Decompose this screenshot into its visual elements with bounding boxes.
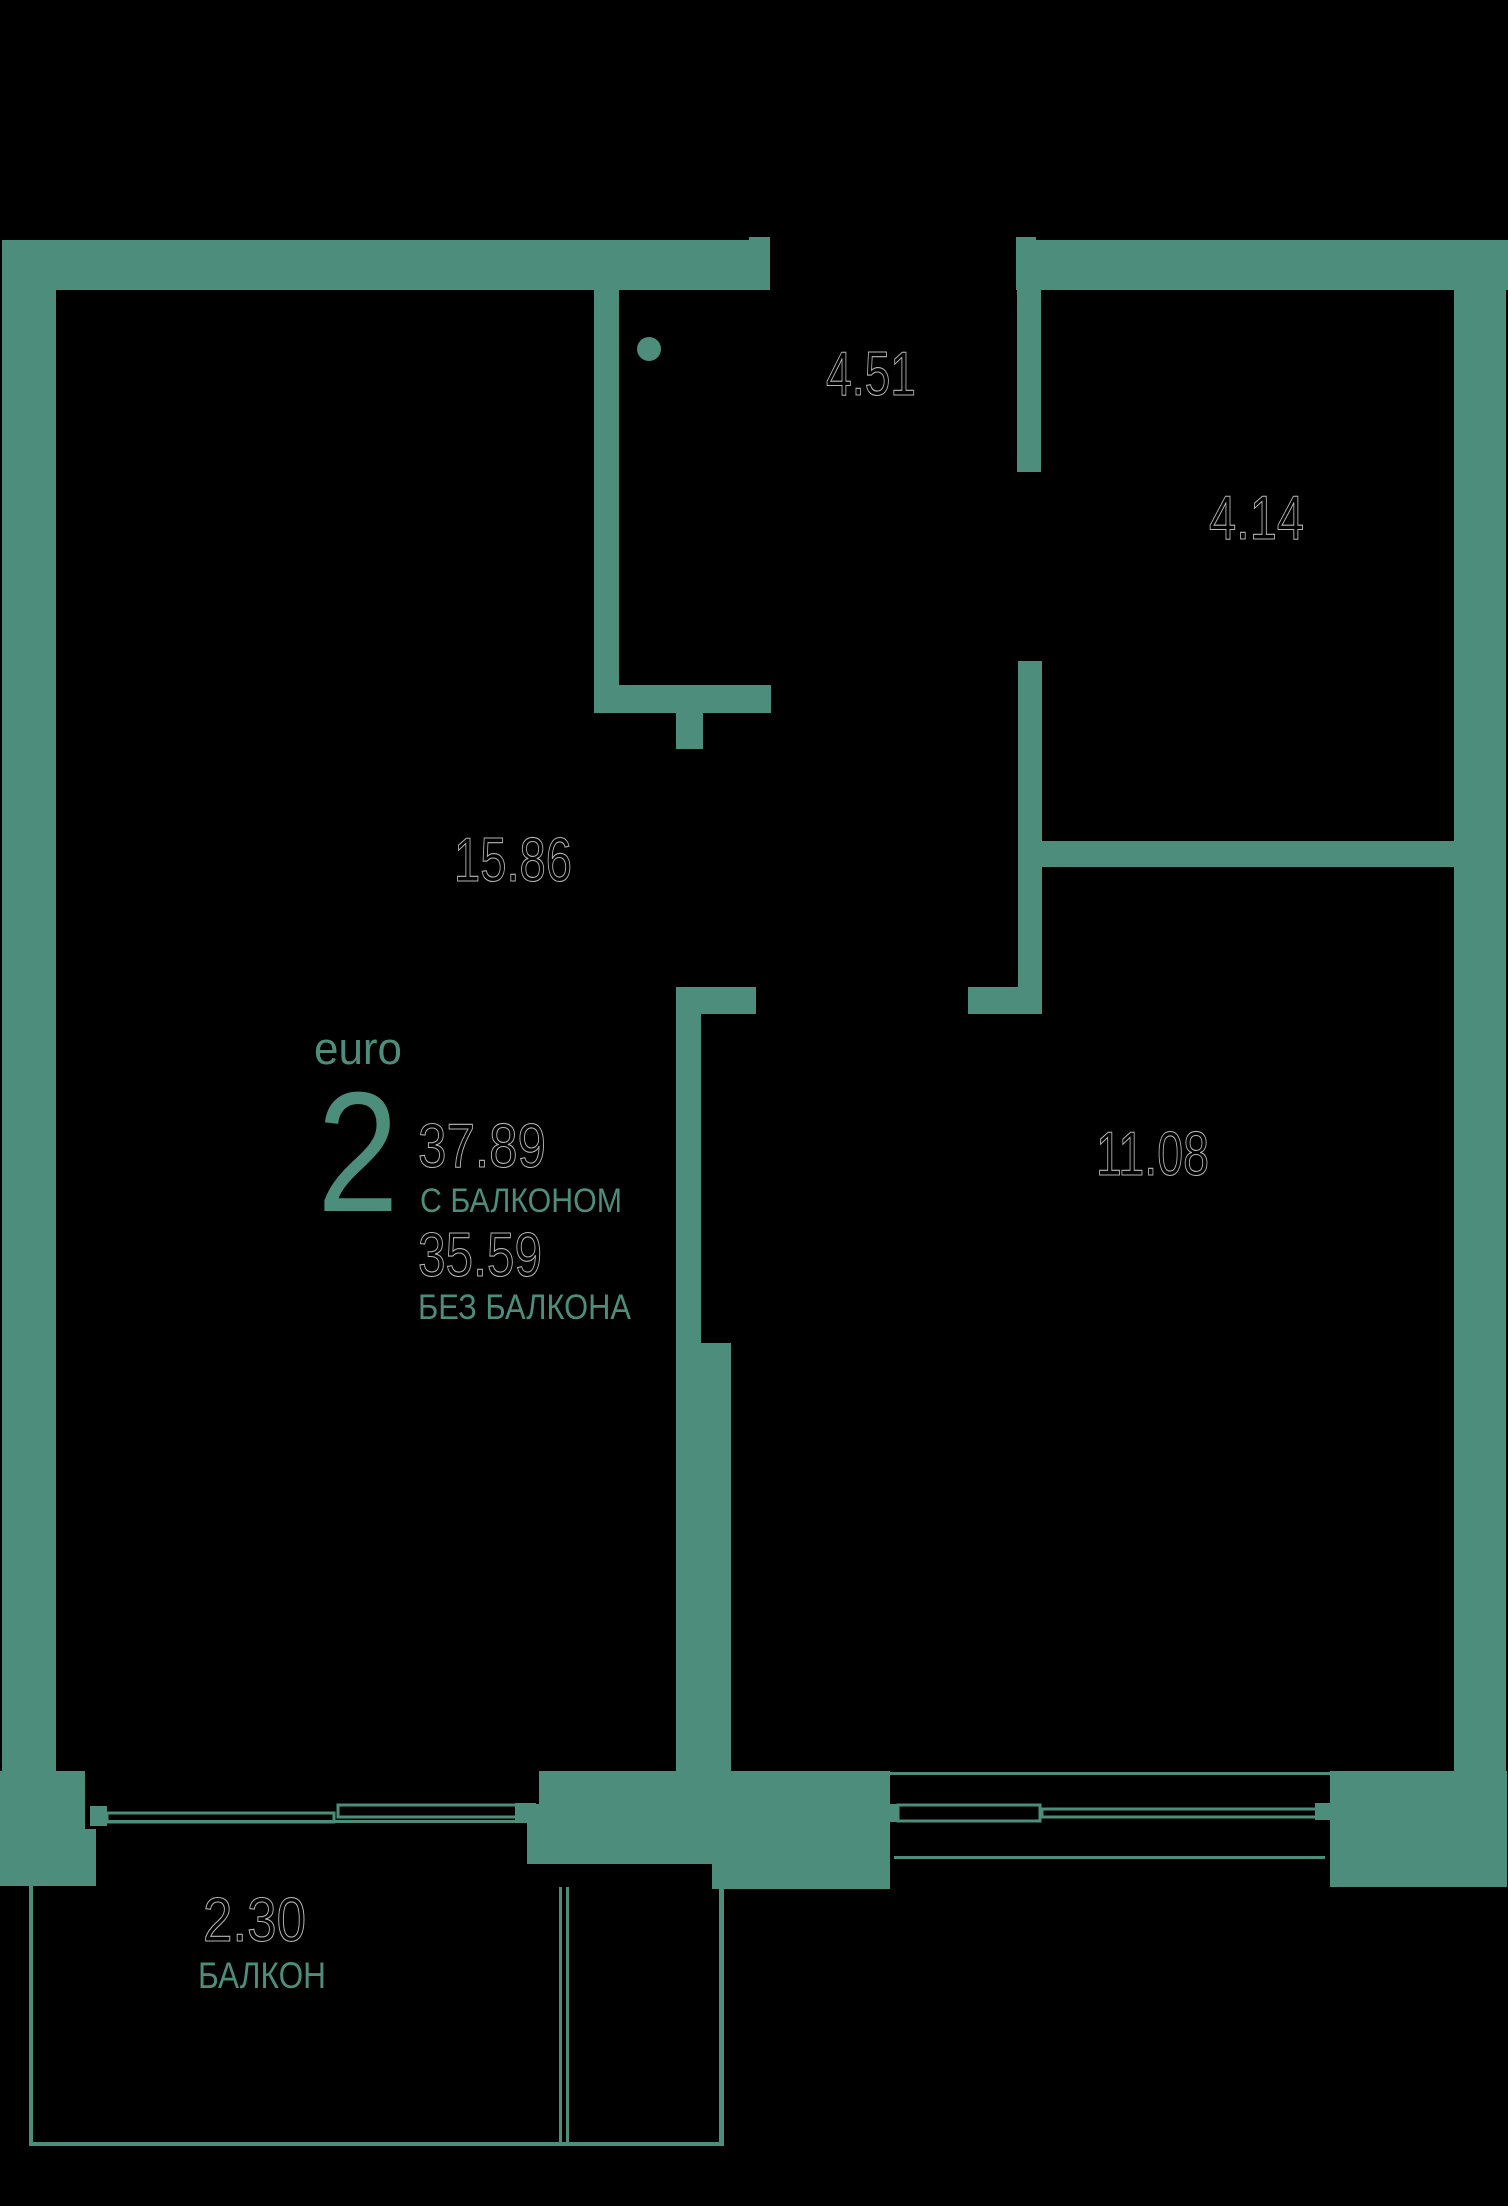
svg-text:15.86: 15.86 <box>454 826 572 895</box>
svg-text:37.89: 37.89 <box>418 1112 546 1181</box>
svg-text:4.14: 4.14 <box>1209 484 1304 553</box>
svg-text:2: 2 <box>317 1057 399 1248</box>
svg-text:С БАЛКОНОМ: С БАЛКОНОМ <box>420 1182 622 1220</box>
svg-text:БЕЗ БАЛКОНА: БЕЗ БАЛКОНА <box>418 1288 632 1327</box>
svg-text:2.30: 2.30 <box>203 1886 306 1955</box>
svg-text:БАЛКОН: БАЛКОН <box>198 1955 326 1996</box>
svg-text:11.08: 11.08 <box>1096 1120 1209 1189</box>
svg-text:4.51: 4.51 <box>826 340 916 409</box>
svg-text:35.59: 35.59 <box>418 1221 542 1290</box>
